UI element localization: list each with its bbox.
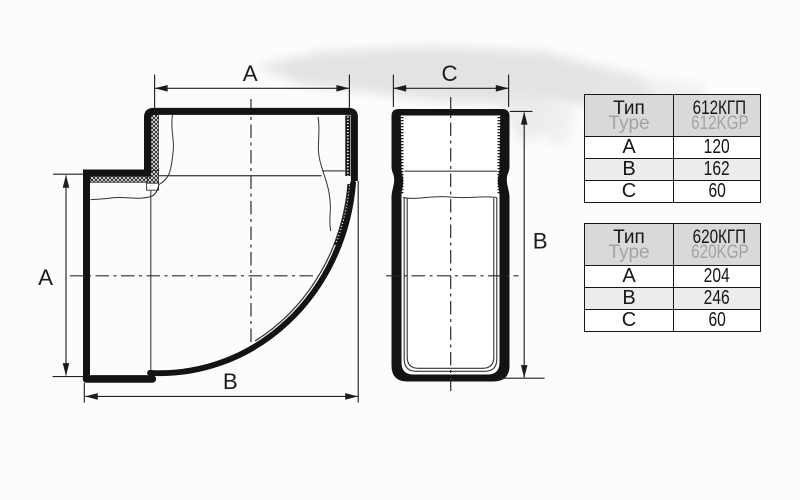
svg-text:A: A: [243, 61, 258, 86]
svg-text:C: C: [442, 61, 458, 86]
svg-text:A: A: [38, 265, 53, 290]
svg-text:B: B: [223, 369, 238, 394]
svg-text:B: B: [533, 228, 548, 253]
